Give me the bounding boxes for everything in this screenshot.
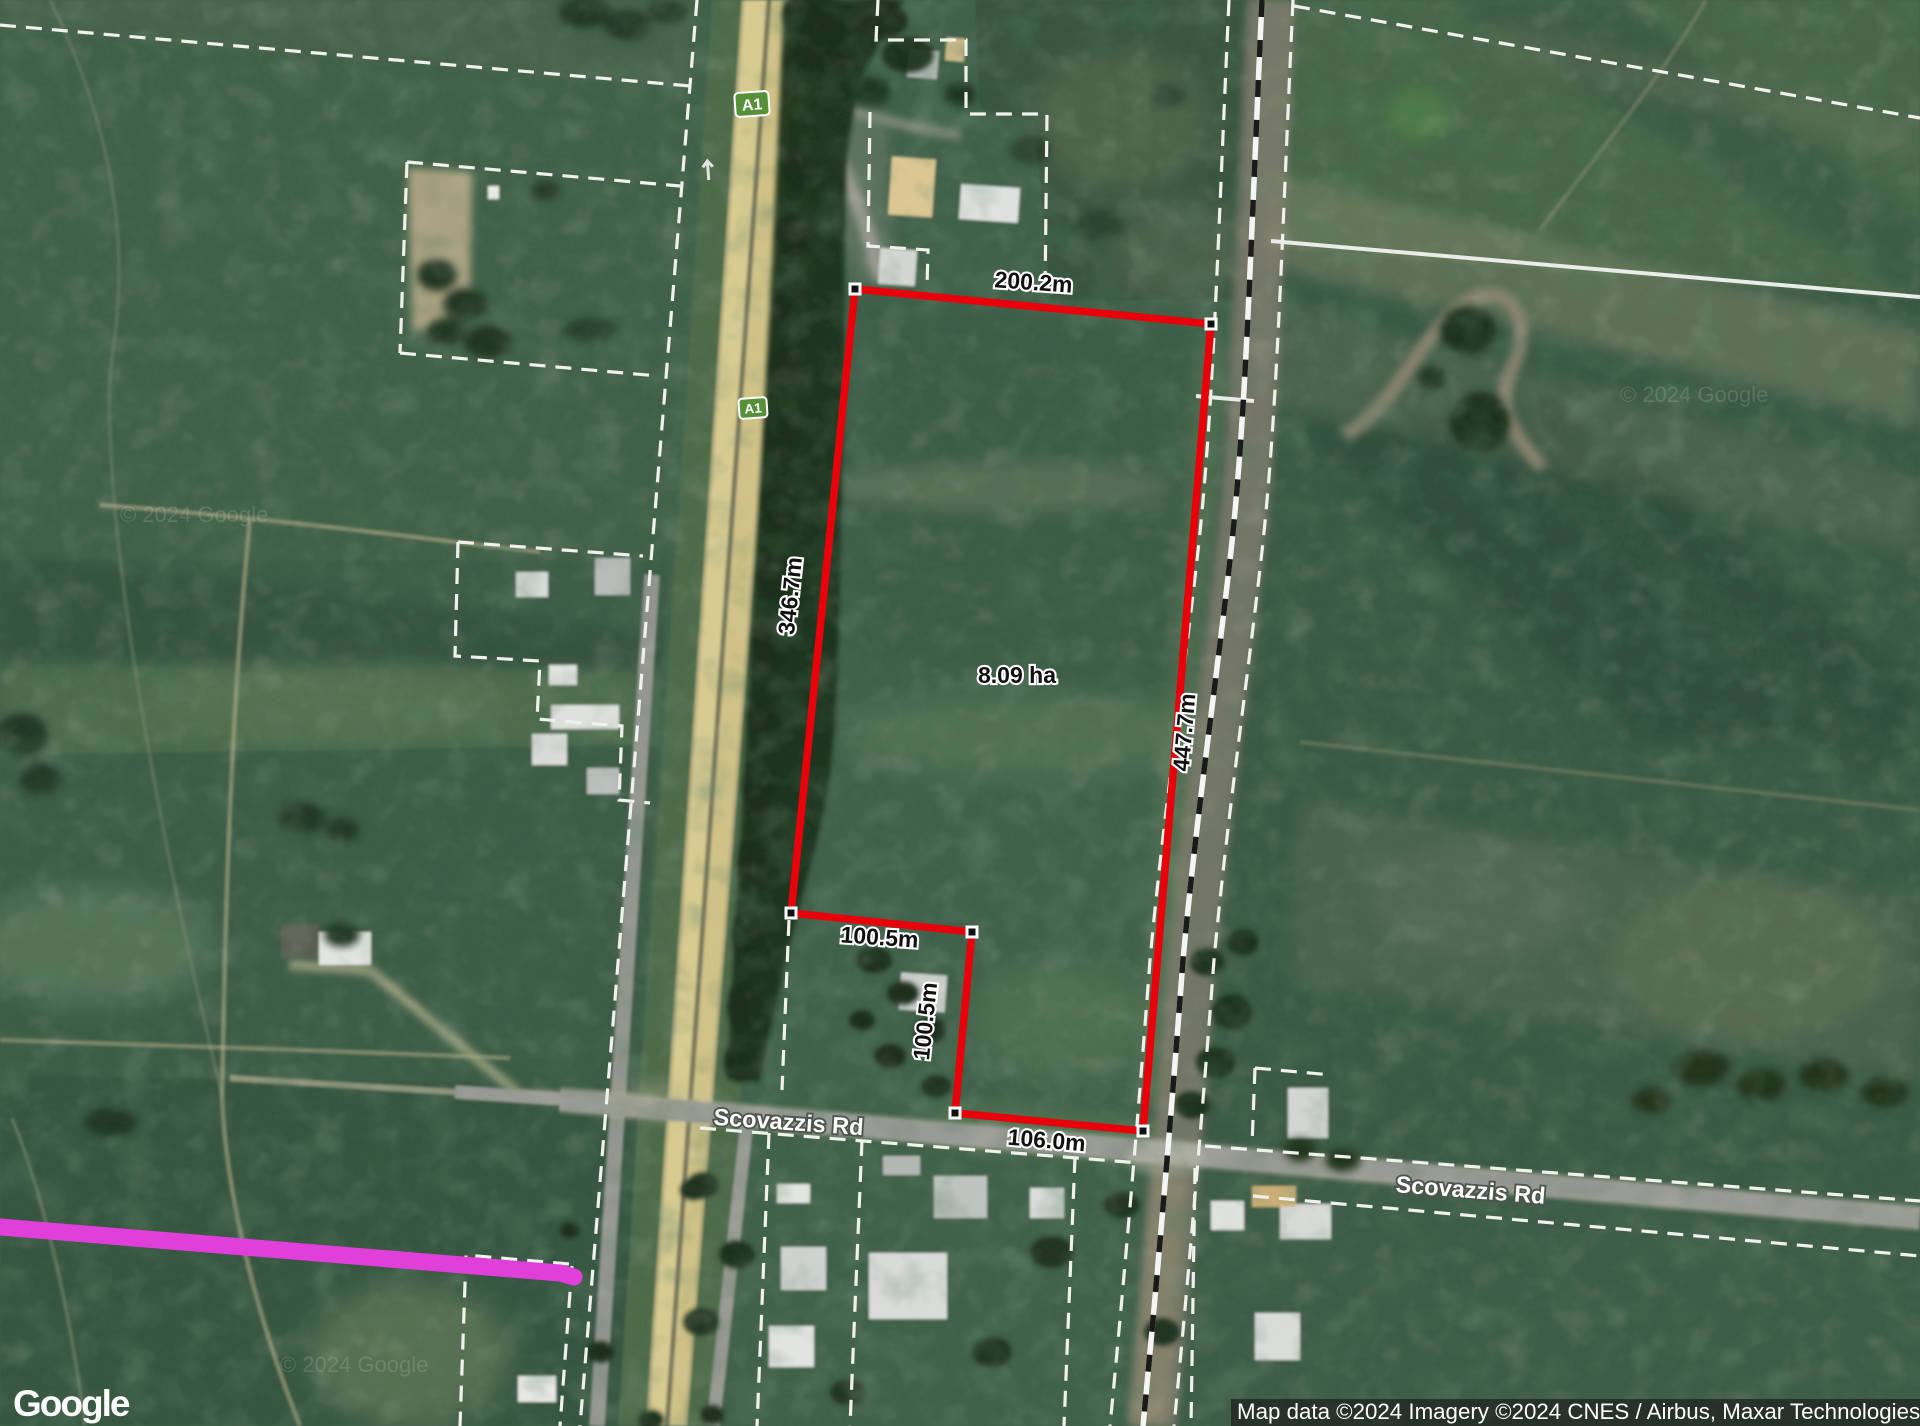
svg-text:100.5m: 100.5m [840, 921, 920, 952]
svg-text:© 2024 Google: © 2024 Google [1620, 382, 1768, 407]
svg-text:© 2024 Google: © 2024 Google [120, 502, 268, 527]
svg-text:© 2024 Google: © 2024 Google [280, 1352, 428, 1377]
svg-text:Map data ©2024 Imagery ©2024 C: Map data ©2024 Imagery ©2024 CNES / Airb… [1237, 1399, 1920, 1424]
svg-text:A1: A1 [741, 96, 763, 114]
svg-text:Google: Google [13, 1383, 130, 1424]
svg-text:A1: A1 [744, 400, 763, 416]
svg-text:8.09 ha: 8.09 ha [978, 662, 1056, 688]
svg-text:200.2m: 200.2m [994, 266, 1074, 297]
